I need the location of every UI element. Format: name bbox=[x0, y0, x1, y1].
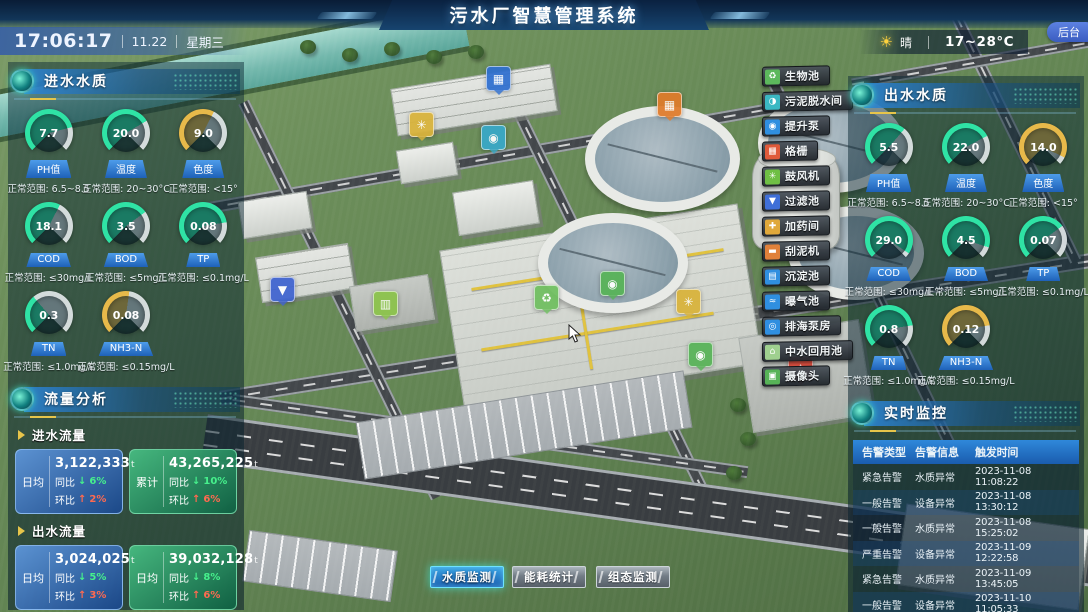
weather-widget: ☀ 晴 17~28°C bbox=[859, 30, 1028, 54]
gauge-range: 正常范围: 6.5~8.5 bbox=[7, 181, 89, 195]
facility-label-sedimentation-pool[interactable]: ▤沉淀池 bbox=[762, 265, 830, 286]
yoy-value: 5% bbox=[89, 572, 106, 583]
mom-label: 环比 bbox=[169, 492, 189, 507]
alarm-table: 告警类型 告警信息 触发时间 紧急告警水质异常2023-11-08 11:08:… bbox=[853, 440, 1079, 612]
sun-icon: ☀ bbox=[879, 33, 892, 51]
gauge-label: BOD bbox=[944, 267, 988, 281]
gauge-range: 正常范围: 20~30°C bbox=[922, 195, 1010, 209]
column-header: 告警类型 bbox=[853, 444, 915, 460]
gauge-range: 正常范围: ≤0.15mg/L bbox=[917, 373, 1014, 387]
flow-unit: t bbox=[254, 460, 258, 470]
bio-icon: ♻ bbox=[541, 292, 552, 304]
inlet-gauge-bod: 3.5 BOD 正常范围: ≤5mg/L bbox=[87, 202, 164, 284]
gauge-ring: 0.12 bbox=[942, 305, 990, 353]
blower-marker-2[interactable]: ✳ bbox=[676, 289, 701, 314]
pump-marker[interactable]: ◉ bbox=[481, 125, 506, 150]
gauge-range: 正常范围: <15° bbox=[169, 181, 238, 195]
mom-value: 2% bbox=[89, 494, 106, 505]
weekday: 星期三 bbox=[186, 32, 224, 51]
water-reuse-icon: ⌂ bbox=[765, 344, 780, 359]
inlet-flow-daily-card: 日均 3,122,333t 同比↓6% 环比↑2% bbox=[15, 449, 123, 514]
card-tag: 日均 bbox=[133, 552, 164, 603]
monitoring-header: 实时监控 bbox=[850, 398, 1080, 428]
gauge-range: 正常范围: 6.5~8.5 bbox=[847, 195, 929, 209]
right-panel: 出水水质 5.5 PH值 正常范围: 6.5~8.5 22.0 温度 正常范围:… bbox=[848, 76, 1084, 612]
gauge-ring: 0.8 bbox=[865, 305, 913, 353]
title-plate: 污水厂智慧管理系统 bbox=[379, 0, 709, 30]
tree bbox=[740, 432, 756, 446]
tree bbox=[468, 45, 484, 59]
tree bbox=[426, 50, 442, 64]
gauge-ring: 0.3 bbox=[25, 291, 73, 339]
gauge-value: 0.3 bbox=[39, 309, 58, 322]
filter-pool-icon: ▼ bbox=[765, 194, 780, 209]
inlet-flow-total-card: 累计 43,265,225t 同比↓10% 环比↑6% bbox=[129, 449, 237, 514]
inlet-gauges: 7.7 PH值 正常范围: 6.5~8.5 20.0 温度 正常范围: 20~3… bbox=[8, 100, 244, 380]
tree bbox=[726, 466, 742, 480]
card-tag: 日均 bbox=[19, 456, 50, 507]
facility-label-sea-pump-house[interactable]: ◎排海泵房 bbox=[762, 315, 841, 337]
inlet-gauge-tn: 0.3 TN 正常范围: ≤1.0mg/L bbox=[10, 291, 87, 373]
gauge-value: 29.0 bbox=[875, 234, 901, 247]
inlet-gauge-ph: 7.7 PH值 正常范围: 6.5~8.5 bbox=[10, 109, 87, 195]
flow-value: 3,024,025 bbox=[55, 552, 130, 567]
gauge-label: 温度 bbox=[945, 174, 987, 192]
gauge-value: 9.0 bbox=[194, 127, 213, 140]
arrow-down-icon: ↓ bbox=[192, 572, 200, 583]
gauge-value: 0.12 bbox=[953, 323, 979, 336]
gauge-ring: 4.5 bbox=[942, 216, 990, 264]
sludge-dewatering-icon: ◑ bbox=[765, 94, 780, 109]
gauge-label: COD bbox=[26, 253, 71, 267]
divider bbox=[928, 36, 929, 49]
alarm-table-body: 紧急告警水质异常2023-11-08 11:08:22 一般告警设备异常2023… bbox=[853, 464, 1079, 612]
pipe bbox=[481, 312, 714, 352]
building bbox=[452, 180, 540, 236]
gauge-value: 14.0 bbox=[1030, 141, 1056, 154]
outlet-gauge-tn: 0.8 TN 正常范围: ≤1.0mg/L bbox=[850, 305, 927, 387]
gauge-ring: 7.7 bbox=[25, 109, 73, 157]
gauge-range: 正常范围: ≤30mg/L bbox=[845, 284, 933, 298]
bio-pool-icon: ♻ bbox=[765, 69, 780, 84]
flow-value: 3,122,333 bbox=[55, 456, 130, 471]
arrow-down-icon: ↓ bbox=[192, 476, 200, 487]
fan-icon: ✳ bbox=[683, 296, 693, 308]
divider bbox=[176, 35, 177, 48]
lift-pump-icon: ◉ bbox=[765, 119, 780, 134]
flow-unit: t bbox=[254, 556, 258, 566]
reuse-marker[interactable]: ▥ bbox=[373, 291, 398, 316]
dosing-room-icon: ✚ bbox=[765, 219, 780, 234]
gauge-label: 温度 bbox=[105, 160, 147, 178]
gauge-range: 正常范围: ≤0.15mg/L bbox=[77, 359, 174, 373]
screen-marker[interactable]: ▦ bbox=[657, 92, 682, 117]
gauge-value: 3.5 bbox=[117, 220, 136, 233]
scada-monitor-button[interactable]: 组态监测 bbox=[596, 566, 670, 588]
parking-lot bbox=[356, 370, 693, 479]
gauge-label: TN bbox=[31, 342, 67, 356]
yoy-label: 同比 bbox=[169, 570, 189, 585]
outlet-flow-label: 出水流量 bbox=[18, 521, 234, 540]
weather-condition: 晴 bbox=[900, 34, 912, 51]
temperature-range: 17~28°C bbox=[945, 34, 1014, 50]
mom-label: 环比 bbox=[55, 492, 75, 507]
gauge-ring: 0.08 bbox=[179, 202, 227, 250]
gauge-label: TP bbox=[1026, 267, 1060, 281]
aeration-pool-icon: ≈ bbox=[765, 294, 780, 309]
gauge-range: 正常范围: ≤5mg/L bbox=[925, 284, 1007, 298]
section-title: 流量分析 bbox=[44, 389, 108, 409]
bio-marker[interactable]: ♻ bbox=[534, 285, 559, 310]
inlet-gauge-tp: 0.08 TP 正常范围: ≤0.1mg/L bbox=[165, 202, 242, 284]
outlet-flow-total-card: 日均 39,032,128t 同比↓8% 环比↑6% bbox=[129, 545, 237, 610]
gauge-value: 0.08 bbox=[113, 309, 139, 322]
section-underline bbox=[14, 416, 236, 418]
outlet-quality-header: 出水水质 bbox=[850, 80, 1080, 110]
pump-icon: ◉ bbox=[488, 132, 498, 144]
card-tag: 日均 bbox=[19, 552, 50, 603]
gauge-ring: 3.5 bbox=[102, 202, 150, 250]
table-row: 紧急告警水质异常2023-11-09 13:45:05 bbox=[853, 566, 1079, 592]
facility-label-mud-scraper[interactable]: ▬刮泥机 bbox=[762, 240, 830, 261]
column-header: 触发时间 bbox=[975, 444, 1079, 460]
gauge-range: 正常范围: ≤30mg/L bbox=[5, 270, 93, 284]
mom-label: 环比 bbox=[169, 588, 189, 603]
section-underline bbox=[14, 98, 236, 100]
table-row: 严重告警设备异常2023-11-09 12:22:58 bbox=[853, 541, 1079, 567]
card-tag: 累计 bbox=[133, 456, 164, 507]
gauge-ring: 22.0 bbox=[942, 123, 990, 171]
gauge-value: 18.1 bbox=[35, 220, 61, 233]
gauge-ring: 20.0 bbox=[102, 109, 150, 157]
gauge-ring: 9.0 bbox=[179, 109, 227, 157]
yoy-label: 同比 bbox=[55, 570, 75, 585]
gauge-value: 7.7 bbox=[39, 127, 58, 140]
facility-label-camera[interactable]: ▣摄像头 bbox=[762, 365, 830, 386]
arrow-up-icon: ↑ bbox=[192, 590, 200, 601]
road bbox=[232, 394, 749, 478]
reuse-icon: ▥ bbox=[380, 298, 391, 310]
gauge-label: NH3-N bbox=[939, 356, 993, 370]
arrow-up-icon: ↑ bbox=[192, 494, 200, 505]
inlet-flow-label: 进水流量 bbox=[18, 425, 234, 444]
gauge-value: 5.5 bbox=[879, 141, 898, 154]
pipe bbox=[570, 241, 593, 370]
tree bbox=[384, 42, 400, 56]
yoy-value: 6% bbox=[89, 476, 106, 487]
fan-icon: ✳ bbox=[416, 119, 426, 131]
camera-marker-1[interactable]: ◉ bbox=[600, 271, 625, 296]
yoy-value: 8% bbox=[203, 572, 220, 583]
camera-icon: ◉ bbox=[607, 278, 617, 290]
gauge-label: PH值 bbox=[866, 174, 912, 192]
sludge-dewatering-marker[interactable]: ▦ bbox=[486, 66, 511, 91]
section-title: 进水水质 bbox=[44, 71, 108, 91]
outlet-gauge-cod: 29.0 COD 正常范围: ≤30mg/L bbox=[850, 216, 927, 298]
gauge-label: BOD bbox=[104, 253, 148, 267]
section-title: 实时监控 bbox=[884, 403, 948, 423]
gauge-ring: 0.08 bbox=[102, 291, 150, 339]
camera-icon: ▣ bbox=[765, 369, 780, 384]
clarifier-tank bbox=[585, 106, 740, 212]
road bbox=[238, 100, 442, 501]
gauge-ring: 14.0 bbox=[1019, 123, 1067, 171]
sedimentation-pool-icon: ▤ bbox=[765, 269, 780, 284]
tree bbox=[342, 48, 358, 62]
admin-button[interactable]: 后台 bbox=[1047, 22, 1088, 42]
facility-label-dosing-room[interactable]: ✚加药间 bbox=[762, 215, 830, 236]
table-row: 一般告警设备异常2023-11-08 13:30:12 bbox=[853, 490, 1079, 516]
energy-stats-button[interactable]: 能耗统计 bbox=[512, 566, 586, 588]
building bbox=[237, 191, 312, 239]
left-panel: 进水水质 7.7 PH值 正常范围: 6.5~8.5 20.0 温度 正常范围:… bbox=[8, 62, 244, 610]
gauge-range: 正常范围: ≤5mg/L bbox=[85, 270, 167, 284]
sludge-dewatering-marker-icon: ▦ bbox=[493, 73, 504, 85]
camera-marker-2[interactable]: ◉ bbox=[688, 342, 713, 367]
section-orb-icon bbox=[10, 69, 34, 93]
gauge-range: 正常范围: ≤0.1mg/L bbox=[158, 270, 249, 284]
facility-label-water-reuse[interactable]: ⌂中水回用池 bbox=[762, 340, 853, 362]
date: 11.22 bbox=[132, 34, 168, 49]
facility-label-bio-pool[interactable]: ♻生物池 bbox=[762, 65, 830, 86]
gauge-value: 4.5 bbox=[957, 234, 976, 247]
outlet-flow-cards: 日均 3,024,025t 同比↓5% 环比↑3% 日均 39,032,128t… bbox=[8, 545, 244, 610]
outlet-gauges: 5.5 PH值 正常范围: 6.5~8.5 22.0 温度 正常范围: 20~3… bbox=[848, 114, 1084, 394]
yoy-value: 10% bbox=[203, 476, 227, 487]
road bbox=[199, 93, 831, 216]
outlet-gauge-temperature: 22.0 温度 正常范围: 20~30°C bbox=[927, 123, 1004, 209]
gauge-label: COD bbox=[866, 267, 911, 281]
gauge-label: 色度 bbox=[1022, 174, 1064, 192]
section-title: 出水水质 bbox=[884, 85, 948, 105]
parking-lot bbox=[242, 530, 398, 602]
top-header-bar: 污水厂智慧管理系统 bbox=[0, 0, 1088, 28]
yoy-label: 同比 bbox=[55, 474, 75, 489]
gauge-range: 正常范围: 20~30°C bbox=[82, 181, 170, 195]
outlet-gauge-bod: 4.5 BOD 正常范围: ≤5mg/L bbox=[927, 216, 1004, 298]
arrow-down-icon: ↓ bbox=[78, 572, 86, 583]
flow-analysis-header: 流量分析 bbox=[10, 384, 240, 414]
section-underline bbox=[854, 430, 1076, 432]
gauge-ring: 29.0 bbox=[865, 216, 913, 264]
mom-value: 3% bbox=[89, 590, 106, 601]
section-underline bbox=[854, 112, 1076, 114]
arrow-down-icon: ↓ bbox=[78, 476, 86, 487]
inlet-gauge-temperature: 20.0 温度 正常范围: 20~30°C bbox=[87, 109, 164, 195]
section-orb-icon bbox=[850, 401, 874, 425]
gauge-range: 正常范围: <15° bbox=[1009, 195, 1078, 209]
bar-screen-icon: ▦ bbox=[765, 144, 780, 159]
gauge-range: 正常范围: ≤0.1mg/L bbox=[998, 284, 1088, 298]
gauge-label: 色度 bbox=[182, 160, 224, 178]
blower-icon: ✳ bbox=[765, 169, 780, 184]
gauge-value: 20.0 bbox=[113, 127, 139, 140]
facility-label-blower[interactable]: ✳鼓风机 bbox=[762, 165, 830, 186]
gauge-value: 0.08 bbox=[190, 220, 216, 233]
page-title: 污水厂智慧管理系统 bbox=[450, 2, 639, 28]
title-decoration-left bbox=[317, 12, 378, 19]
gauge-ring: 18.1 bbox=[25, 202, 73, 250]
outlet-flow-daily-card: 日均 3,024,025t 同比↓5% 环比↑3% bbox=[15, 545, 123, 610]
gauge-label: PH值 bbox=[26, 160, 72, 178]
inlet-gauge-chroma: 9.0 色度 正常范围: <15° bbox=[165, 109, 242, 195]
gauge-value: 22.0 bbox=[953, 141, 979, 154]
sea-pump-house-icon: ◎ bbox=[765, 319, 780, 334]
mom-label: 环比 bbox=[55, 588, 75, 603]
section-orb-icon bbox=[10, 387, 34, 411]
outlet-gauge-tp: 0.07 TP 正常范围: ≤0.1mg/L bbox=[1005, 216, 1082, 298]
title-decoration-right bbox=[710, 12, 771, 19]
gauge-label: TN bbox=[871, 356, 907, 370]
inlet-flow-cards: 日均 3,122,333t 同比↓6% 环比↑2% 累计 43,265,225t… bbox=[8, 449, 244, 514]
inlet-gauge-cod: 18.1 COD 正常范围: ≤30mg/L bbox=[10, 202, 87, 284]
camera-icon: ◉ bbox=[695, 349, 705, 361]
warehouse-roof bbox=[439, 203, 763, 410]
alarm-table-header: 告警类型 告警信息 触发时间 bbox=[853, 440, 1079, 464]
gauge-label: NH3-N bbox=[99, 342, 153, 356]
outlet-gauge-nh3n: 0.12 NH3-N 正常范围: ≤0.15mg/L bbox=[927, 305, 1004, 387]
datetime-block: 17:06:17 11.22 星期三 bbox=[0, 27, 248, 55]
inlet-quality-header: 进水水质 bbox=[10, 66, 240, 96]
tree bbox=[300, 40, 316, 54]
table-row: 一般告警水质异常2023-11-08 15:25:02 bbox=[853, 515, 1079, 541]
divider bbox=[122, 35, 123, 48]
flow-unit: t bbox=[131, 556, 135, 566]
section-orb-icon bbox=[850, 83, 874, 107]
mud-scraper-icon: ▬ bbox=[765, 244, 780, 259]
pipe bbox=[471, 248, 723, 291]
blower-marker-1[interactable]: ✳ bbox=[409, 112, 434, 137]
building bbox=[396, 142, 459, 185]
gauge-value: 0.8 bbox=[879, 323, 898, 336]
screen-icon: ▦ bbox=[664, 99, 675, 111]
table-row: 一般告警设备异常2023-11-10 11:05:33 bbox=[853, 592, 1079, 612]
facility-label-bar-screen[interactable]: ▦格栅 bbox=[762, 140, 818, 161]
outlet-gauge-ph: 5.5 PH值 正常范围: 6.5~8.5 bbox=[850, 123, 927, 209]
water-quality-monitor-button[interactable]: 水质监测 bbox=[430, 566, 504, 588]
column-header: 告警信息 bbox=[915, 444, 975, 460]
gauge-ring: 5.5 bbox=[865, 123, 913, 171]
mom-value: 6% bbox=[203, 494, 220, 505]
facility-label-aeration-pool[interactable]: ≈曝气池 bbox=[762, 290, 830, 311]
filter-marker[interactable]: ▼ bbox=[270, 277, 295, 302]
facility-label-lift-pump[interactable]: ◉提升泵 bbox=[762, 115, 830, 136]
gauge-ring: 0.07 bbox=[1019, 216, 1067, 264]
flow-value: 43,265,225 bbox=[169, 456, 253, 471]
inlet-gauge-nh3n: 0.08 NH3-N 正常范围: ≤0.15mg/L bbox=[87, 291, 164, 373]
flow-unit: t bbox=[131, 460, 135, 470]
arrow-up-icon: ↑ bbox=[78, 494, 86, 505]
tree bbox=[730, 398, 746, 412]
table-row: 紧急告警水质异常2023-11-08 11:08:22 bbox=[853, 464, 1079, 490]
gauge-value: 0.07 bbox=[1030, 234, 1056, 247]
funnel-icon: ▼ bbox=[278, 284, 287, 296]
facility-label-sludge-dewatering[interactable]: ◑污泥脱水间 bbox=[762, 90, 853, 112]
outlet-gauge-chroma: 14.0 色度 正常范围: <15° bbox=[1005, 123, 1082, 209]
flow-value: 39,032,128 bbox=[169, 552, 253, 567]
mom-value: 6% bbox=[203, 590, 220, 601]
yoy-label: 同比 bbox=[169, 474, 189, 489]
gauge-label: TP bbox=[186, 253, 220, 267]
clock-time: 17:06:17 bbox=[14, 30, 113, 52]
arrow-up-icon: ↑ bbox=[78, 590, 86, 601]
facility-label-filter-pool[interactable]: ▼过滤池 bbox=[762, 190, 830, 211]
